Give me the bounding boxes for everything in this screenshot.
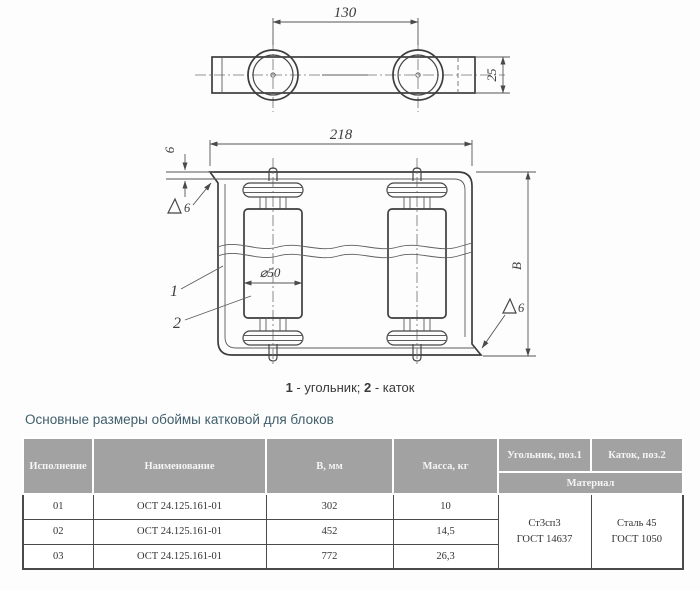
cell-version: 01 <box>23 494 93 519</box>
dim-218: 218 <box>330 127 353 143</box>
cell-name: ОСТ 24.125.161-01 <box>93 494 266 519</box>
caption-pos1-text: - угольник; <box>293 380 364 395</box>
roller-1 <box>243 158 303 366</box>
header-version: Исполнение <box>23 438 93 494</box>
cell-b-mm: 452 <box>266 519 393 544</box>
cell-mass: 10 <box>393 494 498 519</box>
pos-label-1: 1 <box>170 283 178 300</box>
header-mass: Масса, кг <box>393 438 498 494</box>
frame-outline <box>210 172 481 355</box>
header-material: Материал <box>498 472 683 494</box>
cell-material-ugolnik: Ст3сп3 ГОСТ 14637 <box>498 494 591 569</box>
dim-25: 25 <box>484 68 499 82</box>
weld-symbol-right: 6 <box>482 299 525 348</box>
dimensions-table: Исполнение Наименование В, мм Масса, кг … <box>22 437 684 570</box>
table-row: 01 ОСТ 24.125.161-01 302 10 Ст3сп3 ГОСТ … <box>23 494 683 519</box>
header-b-mm: В, мм <box>266 438 393 494</box>
cell-version: 02 <box>23 519 93 544</box>
cell-name: ОСТ 24.125.161-01 <box>93 519 266 544</box>
cell-mass: 26,3 <box>393 544 498 569</box>
drawing-caption: 1 - угольник; 2 - каток <box>0 380 700 395</box>
break-line <box>218 243 472 249</box>
front-view: 218 ⌀50 6 В 6 6 <box>162 127 536 366</box>
technical-drawing: 130 25 218 ⌀50 6 В <box>0 0 700 380</box>
caption-pos1-number: 1 <box>286 380 293 395</box>
cell-material-katok: Сталь 45 ГОСТ 1050 <box>591 494 683 569</box>
svg-text:6: 6 <box>184 201 191 215</box>
dim-B: В <box>509 262 524 270</box>
cell-mass: 14,5 <box>393 519 498 544</box>
roller-2 <box>387 158 447 366</box>
cell-b-mm: 302 <box>266 494 393 519</box>
header-ugolnik: Угольник, поз.1 <box>498 438 591 472</box>
header-name: Наименование <box>93 438 266 494</box>
header-katok: Каток, поз.2 <box>591 438 683 472</box>
section-title: Основные размеры обоймы катковой для бло… <box>25 412 334 427</box>
weld-symbol-left: 6 <box>168 183 211 215</box>
top-view: 130 25 <box>195 5 510 112</box>
dim-130: 130 <box>334 5 357 21</box>
dim-6: 6 <box>162 146 177 153</box>
pos-label-2: 2 <box>173 315 181 332</box>
svg-text:6: 6 <box>518 301 525 315</box>
cell-name: ОСТ 24.125.161-01 <box>93 544 266 569</box>
dim-diameter-50: ⌀50 <box>260 265 281 280</box>
cell-b-mm: 772 <box>266 544 393 569</box>
cell-version: 03 <box>23 544 93 569</box>
caption-pos2-text: - каток <box>371 380 414 395</box>
